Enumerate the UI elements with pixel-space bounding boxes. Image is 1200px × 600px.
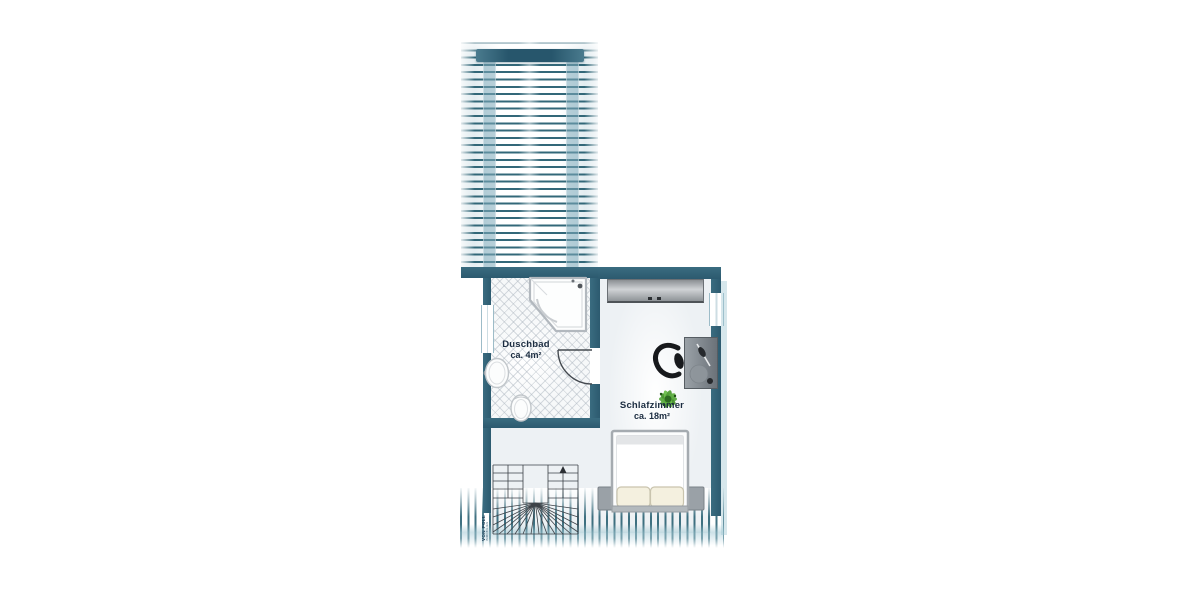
glass-canopy-bar <box>476 49 584 62</box>
washbasin <box>483 356 513 390</box>
watermark-sub: IMMOBILIEN <box>486 515 489 541</box>
bedroom-label: Schlafzimmer ca. 18m² <box>592 400 712 422</box>
tub-faucet <box>578 284 583 289</box>
glass-canopy-leg-right <box>566 49 579 268</box>
office-chair <box>648 339 688 383</box>
pillow <box>651 487 684 507</box>
wardrobe-handle <box>648 297 652 300</box>
pillow <box>617 487 650 507</box>
headboard <box>612 506 688 512</box>
floorplan-canvas: Duschbad ca. 4m² Schlafzimmer ca. 18m² V… <box>0 0 1200 600</box>
brand-watermark: VON POLL IMMOBILIEN <box>481 515 489 541</box>
corner-bathtub <box>524 272 592 336</box>
toilet <box>509 391 533 423</box>
glass-canopy-leg-left <box>483 49 496 268</box>
wardrobe <box>607 279 704 303</box>
bathroom-area: ca. 4m² <box>466 350 586 361</box>
bathroom-label: Duschbad ca. 4m² <box>466 339 586 361</box>
wall-bathroom-bottom <box>483 418 600 428</box>
desk-stool <box>690 365 708 383</box>
desk <box>684 337 718 389</box>
nightstand-right <box>687 487 704 510</box>
bed <box>596 427 708 515</box>
facade-edge-right <box>721 281 727 535</box>
bathroom-name: Duschbad <box>466 339 586 350</box>
up-arrow <box>560 466 567 473</box>
wall-bedroom-top <box>598 267 721 279</box>
half-turn-staircase <box>489 463 586 535</box>
bedroom-name: Schlafzimmer <box>592 400 712 411</box>
wall-right-upper <box>711 279 721 293</box>
wall-left-upper <box>483 278 491 305</box>
bedroom-area: ca. 18m² <box>592 411 712 422</box>
wardrobe-handle <box>657 297 661 300</box>
